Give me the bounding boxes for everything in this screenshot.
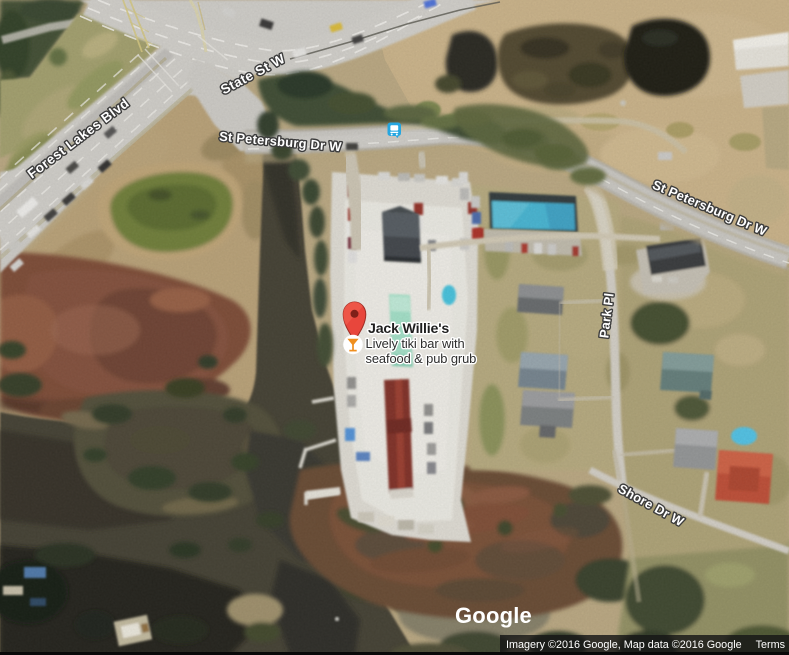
svg-text:Terms: Terms [756, 639, 786, 651]
svg-text:seafood & pub grub: seafood & pub grub [366, 351, 477, 366]
svg-text:Imagery ©2016 Google, Map data: Imagery ©2016 Google, Map data ©2016 Goo… [506, 639, 742, 651]
svg-text:Google: Google [455, 603, 532, 628]
svg-text:Jack Willie's: Jack Willie's [368, 321, 449, 337]
svg-text:Lively tiki bar with: Lively tiki bar with [366, 336, 465, 351]
